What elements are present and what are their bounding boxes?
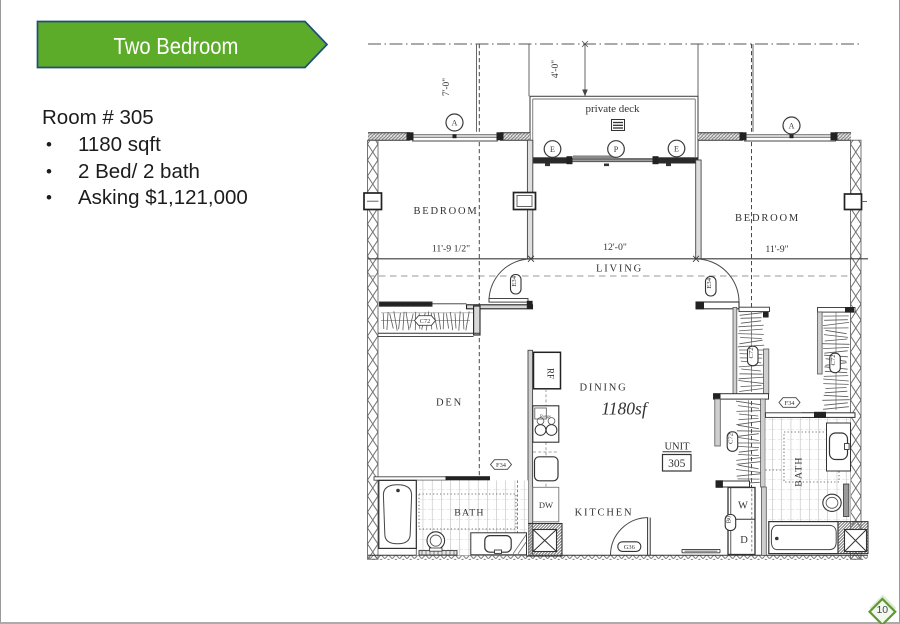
svg-text:11'-9": 11'-9" <box>765 244 788 255</box>
svg-text:E: E <box>550 145 555 154</box>
svg-text:B0: B0 <box>726 515 733 523</box>
svg-text:11'-9 1/2": 11'-9 1/2" <box>432 244 470 255</box>
svg-text:BATH: BATH <box>794 456 805 486</box>
svg-text:UNIT: UNIT <box>664 442 690 453</box>
svg-text:4'-0": 4'-0" <box>551 60 561 78</box>
svg-text:12'-0": 12'-0" <box>603 242 627 253</box>
svg-text:BEDROOM: BEDROOM <box>413 206 478 217</box>
svg-text:private deck: private deck <box>585 103 640 115</box>
svg-text:C72: C72 <box>420 318 431 325</box>
svg-text:E34: E34 <box>706 277 713 288</box>
svg-text:DINING: DINING <box>579 383 627 394</box>
svg-text:F34: F34 <box>496 462 507 469</box>
svg-text:RF: RF <box>545 368 555 379</box>
svg-text:1180sf: 1180sf <box>601 399 649 419</box>
svg-text:LIVING: LIVING <box>596 264 643 275</box>
svg-text:BEDROOM: BEDROOM <box>735 213 800 224</box>
svg-text:C72: C72 <box>728 433 735 444</box>
svg-text:E34: E34 <box>511 275 518 286</box>
svg-text:A: A <box>452 119 458 128</box>
svg-text:F34: F34 <box>785 400 796 407</box>
svg-text:7'-0": 7'-0" <box>442 78 452 96</box>
svg-text:C72: C72 <box>748 348 755 359</box>
svg-text:D: D <box>740 535 748 546</box>
svg-text:P: P <box>614 145 619 154</box>
svg-text:C72: C72 <box>830 355 837 366</box>
svg-text:DW: DW <box>539 500 553 510</box>
svg-text:DEN: DEN <box>436 398 463 409</box>
svg-text:G36: G36 <box>624 544 635 551</box>
svg-text:KITCHEN: KITCHEN <box>575 508 634 519</box>
svg-text:W: W <box>738 501 748 512</box>
svg-text:A: A <box>789 122 795 131</box>
svg-text:E: E <box>674 145 679 154</box>
svg-text:305: 305 <box>668 458 686 470</box>
svg-text:BATH: BATH <box>454 508 484 519</box>
